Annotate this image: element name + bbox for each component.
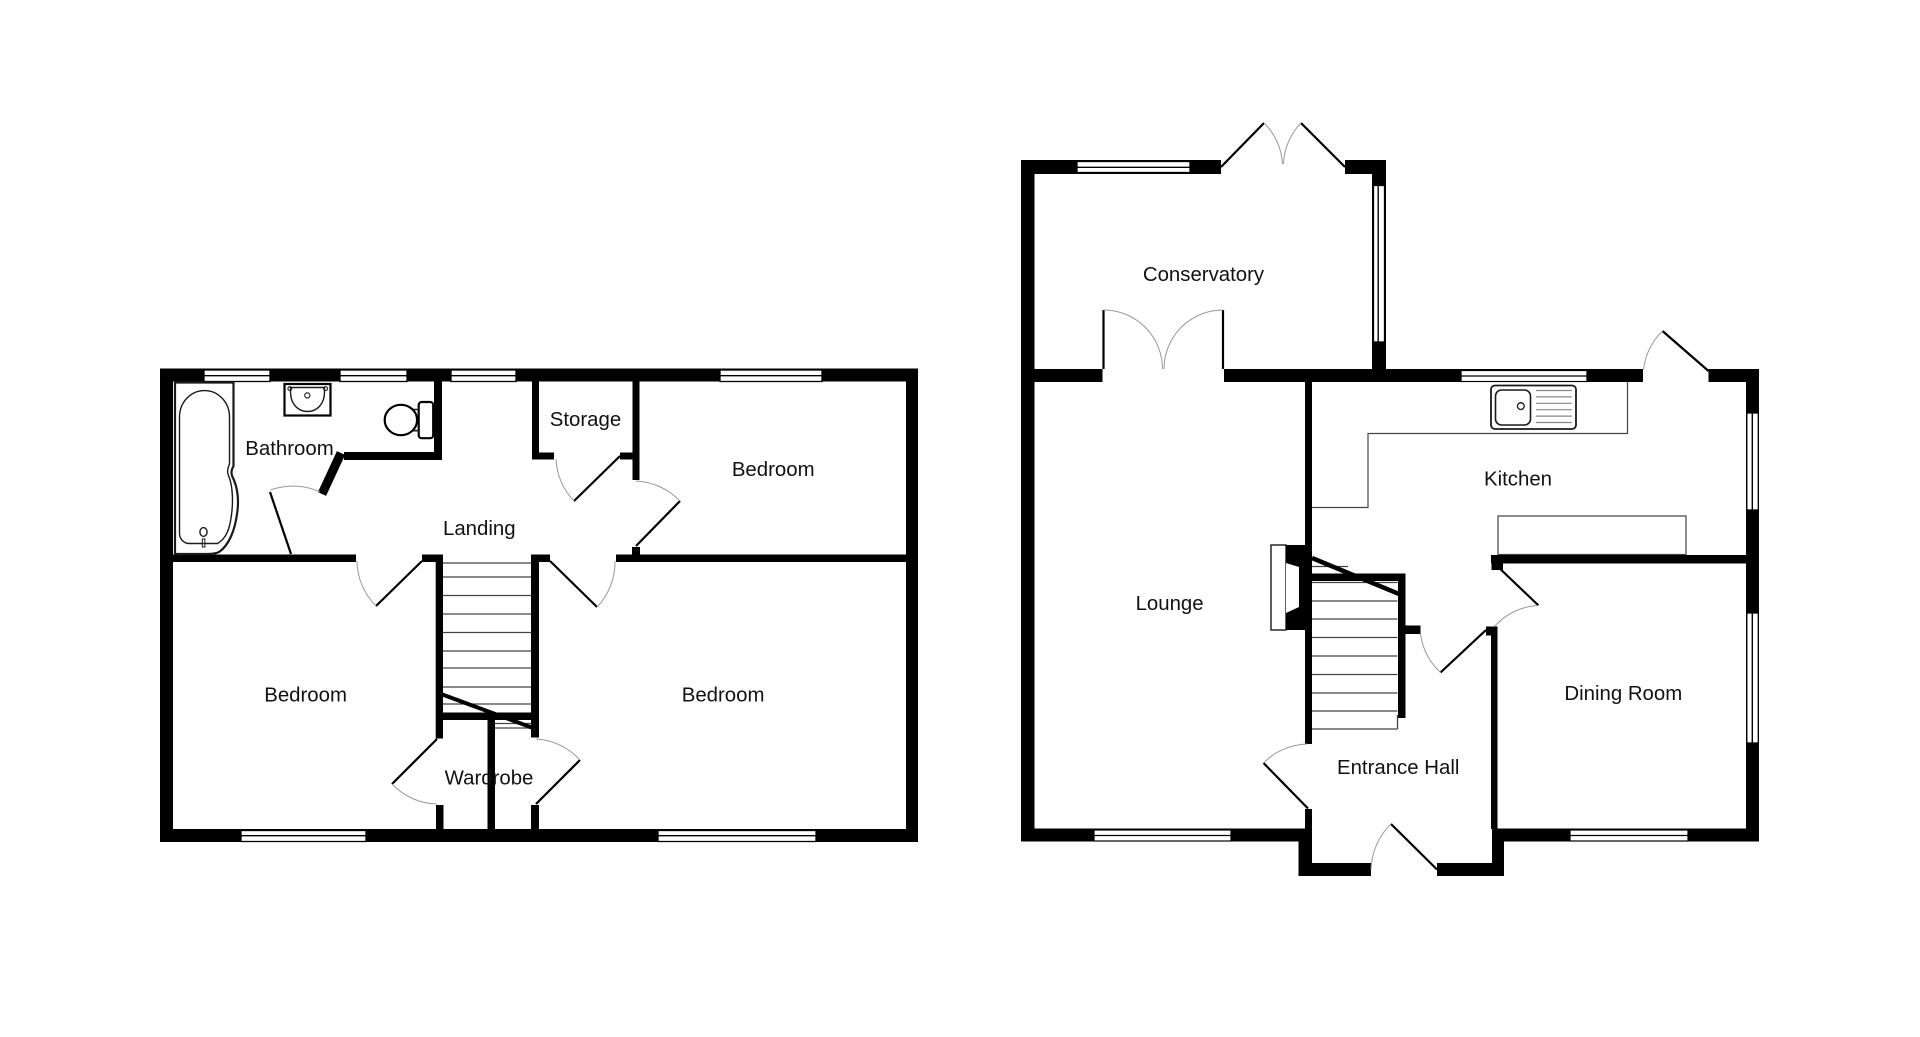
svg-text:Entrance Hall: Entrance Hall: [1337, 757, 1459, 779]
svg-text:Kitchen: Kitchen: [1484, 469, 1552, 491]
svg-text:Bedroom: Bedroom: [264, 685, 347, 707]
svg-text:Dining Room: Dining Room: [1564, 683, 1682, 705]
svg-text:Wardrobe: Wardrobe: [445, 768, 534, 790]
svg-text:Landing: Landing: [443, 518, 516, 540]
svg-text:Bathroom: Bathroom: [245, 438, 333, 460]
svg-text:Bedroom: Bedroom: [682, 685, 765, 707]
svg-text:Bedroom: Bedroom: [732, 459, 815, 481]
svg-text:Storage: Storage: [550, 409, 621, 431]
svg-text:Lounge: Lounge: [1136, 593, 1204, 615]
svg-text:Conservatory: Conservatory: [1143, 264, 1265, 286]
